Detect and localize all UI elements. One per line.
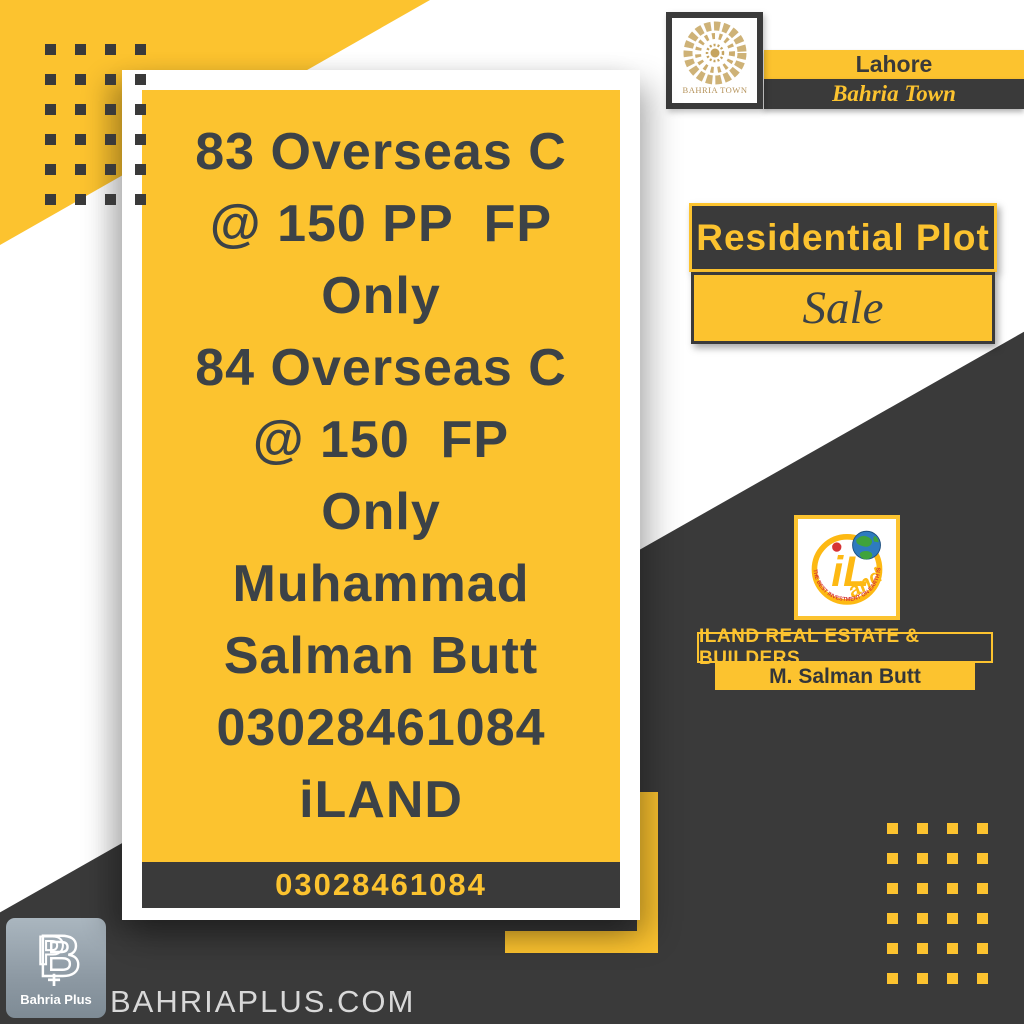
brand-script-label: Bahria Town — [832, 81, 956, 107]
dot — [917, 973, 928, 984]
dot — [887, 913, 898, 924]
dot — [75, 194, 86, 205]
listing-card: 83 Overseas C@ 150 PP FPOnly84 Overseas … — [122, 70, 640, 920]
dot — [135, 44, 146, 55]
dot — [135, 74, 146, 85]
listing-card-panel: 83 Overseas C@ 150 PP FPOnly84 Overseas … — [142, 90, 620, 862]
dot — [917, 883, 928, 894]
agency-name-bar: ILAND REAL ESTATE & BUILDERS — [697, 632, 993, 663]
monogram-plus: + — [47, 967, 61, 994]
bahria-plus-logo: B P + Bahria Plus — [6, 918, 106, 1018]
dot — [977, 823, 988, 834]
brand-bar: Bahria Town — [764, 79, 1024, 109]
dot — [105, 44, 116, 55]
bahria-town-logo: BAHRIA TOWN — [666, 12, 763, 109]
dot — [887, 943, 898, 954]
status-badge: Sale — [691, 272, 995, 344]
card-text-line: 83 Overseas C — [195, 116, 567, 188]
dot — [887, 973, 898, 984]
card-text-line: @ 150 FP — [253, 404, 509, 476]
flyer-canvas: 83 Overseas C@ 150 PP FPOnly84 Overseas … — [0, 0, 1024, 1024]
dot — [135, 134, 146, 145]
dot — [977, 943, 988, 954]
dot — [75, 74, 86, 85]
card-text-line: 03028461084 — [216, 692, 545, 764]
iland-logo: iL and THE BEST INVESTMENT ON EARTH IS E… — [794, 515, 900, 620]
globe-icon — [853, 531, 881, 559]
bahria-town-emblem-icon: BAHRIA TOWN — [673, 19, 757, 103]
dot — [45, 134, 56, 145]
dot — [977, 853, 988, 864]
card-text-line: Only — [321, 476, 441, 548]
dot — [105, 134, 116, 145]
dot — [105, 164, 116, 175]
yellow-accent-strip — [637, 792, 658, 953]
dot — [917, 823, 928, 834]
card-text-line: @ 150 PP FP — [210, 188, 552, 260]
yellow-accent-bar — [505, 931, 658, 953]
listing-type-badge: Residential Plot — [689, 203, 997, 272]
dot — [75, 164, 86, 175]
dot — [45, 104, 56, 115]
dot — [977, 913, 988, 924]
dot — [887, 883, 898, 894]
dot — [45, 164, 56, 175]
dot — [135, 194, 146, 205]
dot — [947, 883, 958, 894]
bahria-town-caption: BAHRIA TOWN — [682, 85, 747, 95]
dot — [75, 44, 86, 55]
card-text-line: Salman Butt — [224, 620, 538, 692]
card-text-line: 84 Overseas C — [195, 332, 567, 404]
city-label: Lahore — [856, 51, 933, 78]
dot — [947, 943, 958, 954]
status-label: Sale — [803, 281, 884, 335]
dot — [917, 943, 928, 954]
dot-grid-bottom-right — [887, 823, 988, 984]
dot — [917, 913, 928, 924]
dot — [135, 104, 146, 115]
dot — [947, 973, 958, 984]
dot — [887, 853, 898, 864]
dot — [45, 194, 56, 205]
website-url: BAHRIAPLUS.COM — [110, 984, 415, 1020]
phone-bar: 03028461084 — [142, 862, 620, 908]
dot-grid-top-left — [45, 44, 146, 205]
dot — [887, 823, 898, 834]
dot — [135, 164, 146, 175]
dot — [75, 104, 86, 115]
bahria-plus-monogram-icon: B P + — [20, 918, 92, 996]
dot — [977, 973, 988, 984]
dot — [947, 823, 958, 834]
iland-logo-icon: iL and THE BEST INVESTMENT ON EARTH IS E… — [800, 521, 894, 614]
bahria-plus-caption: Bahria Plus — [20, 992, 92, 1007]
agency-name-label: ILAND REAL ESTATE & BUILDERS — [699, 626, 991, 670]
dot — [947, 853, 958, 864]
card-text-line: Only — [321, 260, 441, 332]
dot — [947, 913, 958, 924]
city-bar: Lahore — [764, 50, 1024, 79]
dot — [105, 74, 116, 85]
dot — [977, 883, 988, 894]
dot — [75, 134, 86, 145]
listing-type-label: Residential Plot — [696, 217, 990, 259]
dot — [917, 853, 928, 864]
card-text-line: Muhammad — [233, 548, 530, 620]
dot — [105, 104, 116, 115]
dot — [45, 74, 56, 85]
phone-number: 03028461084 — [275, 867, 487, 903]
dot — [45, 44, 56, 55]
dot — [105, 194, 116, 205]
card-text-line: iLAND — [299, 764, 463, 836]
